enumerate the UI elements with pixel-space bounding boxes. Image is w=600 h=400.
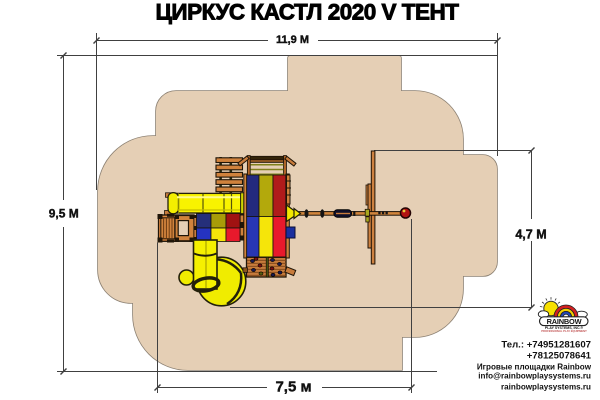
svg-text:PROFESSIONAL PLAY EQUIPMENT: PROFESSIONAL PLAY EQUIPMENT	[541, 329, 587, 333]
svg-text:7,5 м: 7,5 м	[275, 379, 311, 396]
svg-text:4,7 М: 4,7 М	[515, 228, 546, 242]
svg-text:ЦИРКУС КАСТЛ 2020 V ТЕНТ: ЦИРКУС КАСТЛ 2020 V ТЕНТ	[155, 0, 459, 25]
svg-text:Игровые площадки Rainbow: Игровые площадки Rainbow	[477, 362, 592, 371]
svg-text:Тел.: +74951281607: Тел.: +74951281607	[501, 340, 591, 351]
svg-text:rainbowplaysystems.ru: rainbowplaysystems.ru	[501, 383, 591, 392]
svg-text:info@rainbowplaysystems.ru: info@rainbowplaysystems.ru	[478, 372, 591, 381]
svg-text:9,5 М: 9,5 М	[49, 206, 79, 220]
svg-text:RAINBOW: RAINBOW	[547, 317, 582, 326]
svg-text:11,9 М: 11,9 М	[276, 34, 309, 46]
svg-text:+78125078641: +78125078641	[527, 351, 592, 362]
